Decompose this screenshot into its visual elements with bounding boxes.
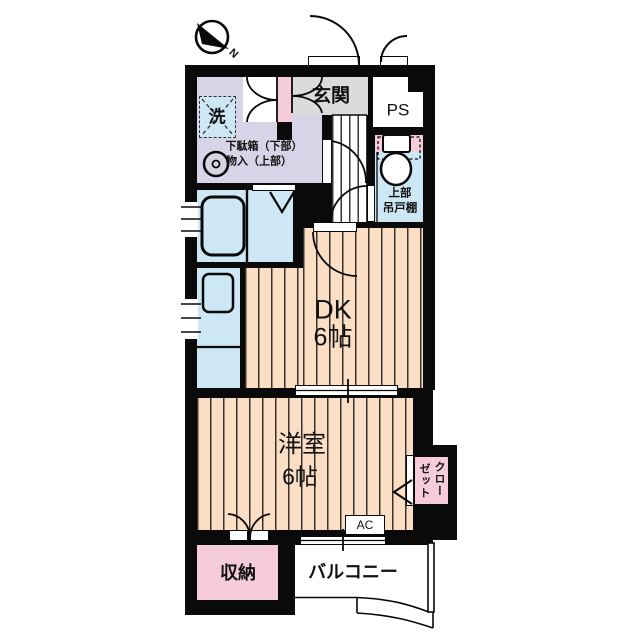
- dk-western-sliding-door: [295, 385, 398, 396]
- balcony-window: [300, 536, 386, 545]
- pipe-space-floor-upper: [373, 77, 408, 92]
- toilet-door-leaf: [367, 185, 375, 222]
- pipe-space-label: PS: [387, 102, 410, 119]
- shoe-cabinet-wall-stub: [277, 122, 292, 140]
- toilet-upper-cabinet-band: [375, 135, 423, 152]
- cabinet-niche: [243, 77, 277, 122]
- storage-label: 収納: [220, 564, 256, 582]
- storage-bifold-leaf-left: [229, 530, 248, 541]
- washroom-door-leaf: [322, 139, 332, 184]
- dk-door-leaf: [313, 222, 357, 232]
- entrance-door-leaf: [308, 56, 360, 66]
- closet-label-col1: クロー: [433, 461, 444, 497]
- left-wall-vent-1: [184, 202, 198, 237]
- left-wall-vent-2: [184, 299, 198, 339]
- toilet-cabinet-label-1: 上部: [389, 188, 412, 200]
- dk-name-label: DK: [314, 297, 352, 324]
- shoe-cabinet-label-2: 物入（上部）: [226, 157, 292, 168]
- floor-plan: N 玄関 PS 洗 下駄箱（下部） 物入（上部） 上部 吊戸棚 DK 6帖 洋室…: [0, 0, 640, 640]
- shoe-cabinet-label-1: 下駄箱（下部）: [226, 142, 303, 153]
- bathroom-floor: [197, 190, 293, 262]
- bathroom-door: [252, 184, 296, 191]
- kitchen-counter: [197, 268, 240, 388]
- storage-bifold-leaf-right: [250, 530, 269, 541]
- ac-label: AC: [357, 519, 374, 531]
- shoe-cabinet: [277, 77, 292, 122]
- western-room-name-label: 洋室: [278, 433, 326, 457]
- dk-floor-lower: [245, 268, 303, 388]
- dk-size-label: 6帖: [314, 326, 353, 351]
- closet-label-col2: ゼット: [418, 463, 429, 499]
- closet-door-leaf: [406, 455, 414, 506]
- compass-north-label: N: [226, 47, 239, 60]
- hallway-floor: [332, 115, 367, 222]
- western-room-size-label: 6帖: [282, 466, 318, 489]
- entrance-label: 玄関: [312, 87, 350, 106]
- ps-door-leaf: [380, 56, 408, 66]
- compass-north-icon: [196, 21, 229, 53]
- balcony-label: バルコニー: [308, 563, 398, 581]
- toilet-cabinet-label-2: 吊戸棚: [383, 203, 418, 215]
- laundry-label: 洗: [209, 109, 226, 126]
